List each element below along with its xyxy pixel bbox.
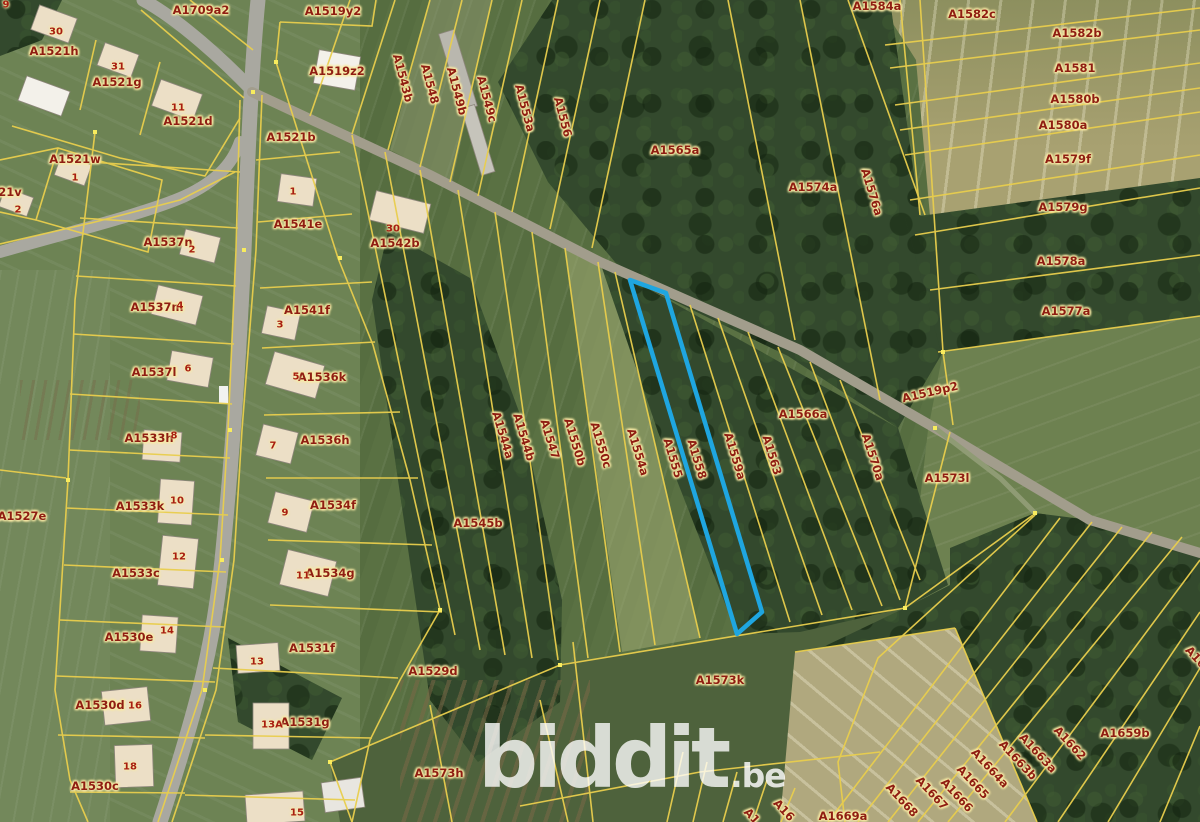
- house-number-label: 31: [111, 62, 125, 73]
- garden-plots-left: [20, 380, 140, 440]
- parcel-label: A1563: [759, 433, 784, 476]
- parcel-label: A1541f: [284, 303, 330, 317]
- parcel-label: A1565a: [651, 143, 700, 157]
- parcel-label: A1547: [537, 417, 562, 460]
- parcel-label: A1574a: [789, 180, 838, 194]
- field-track: [935, 428, 1035, 513]
- parcel-label: A1668: [883, 780, 921, 819]
- house-number-label: 11: [171, 103, 185, 114]
- left-field: [0, 270, 110, 822]
- aerial-background: [0, 0, 1200, 822]
- farm-strips-bottom-right: [0, 0, 1200, 822]
- house-number-label: 4: [177, 301, 184, 312]
- parcel-label: A1533k: [116, 499, 165, 513]
- parcel-label: A1521b: [266, 130, 315, 144]
- parcel-label: A1580b: [1050, 92, 1099, 106]
- parcel-label: A1584a: [853, 0, 902, 13]
- parcel-labels-layer: A1709a2A1521hA1521gA1521dA1521w21vA1519y…: [0, 0, 1200, 822]
- house-number-label: 2: [189, 245, 196, 256]
- parcel-label: A1566a: [779, 407, 828, 421]
- parcel-label: A1666: [938, 775, 976, 814]
- parcel-label: A1534f: [310, 498, 356, 512]
- parcel-label: A1534g: [305, 566, 354, 580]
- parcel-label: A1537l: [132, 365, 177, 379]
- parcel-label: A16: [1182, 643, 1200, 671]
- country-lane: [252, 92, 1200, 553]
- house-number-label: 7: [270, 441, 277, 452]
- parcel-label: A1554a: [624, 427, 652, 478]
- biddit-watermark: biddit.be: [478, 716, 786, 800]
- house-number-label: 14: [160, 626, 174, 637]
- parcel-label: A1531f: [289, 641, 335, 655]
- house-number-label: 3: [277, 320, 284, 331]
- parcel-label: A1542b: [370, 236, 419, 250]
- parcel-label: A1537m: [131, 300, 184, 314]
- parcel-label: A1548: [418, 62, 442, 105]
- parcel-label: A1573h: [414, 766, 463, 780]
- pasture-field: [0, 0, 1200, 822]
- parcel-label: A1549c: [474, 74, 500, 124]
- highlighted-parcel-outline[interactable]: [630, 280, 762, 634]
- house-number-label: 15: [290, 808, 304, 819]
- house-number-label: 9: [3, 0, 10, 11]
- parcel-label: A1577a: [1042, 304, 1091, 318]
- parcel-label: A1662: [1051, 723, 1089, 762]
- forest-patch-top-left: [0, 0, 1200, 822]
- parcel-label: A1530e: [105, 630, 154, 644]
- house-number-label: 1: [72, 173, 79, 184]
- parcel-label: A1550b: [561, 416, 589, 467]
- biddit-brand-text: biddit: [478, 709, 726, 807]
- parcel-label: A1531g: [280, 715, 329, 729]
- house-number-label: 5: [293, 372, 300, 383]
- parcel-label: A1521w: [49, 152, 101, 166]
- house-number-label: 30: [386, 224, 400, 235]
- house-number-label: 10: [170, 496, 184, 507]
- parcel-label: A1530d: [75, 698, 124, 712]
- light-grass-strip: [0, 0, 1200, 822]
- parcel-label: A1544a: [489, 410, 517, 461]
- parcel-label: A1582b: [1052, 26, 1101, 40]
- parcel-label: A1519z2: [309, 64, 365, 78]
- parcel-label: A1570a: [859, 432, 887, 483]
- house-number-label: 12: [172, 552, 186, 563]
- parcel-label: A1521d: [163, 114, 212, 128]
- cadastral-map-canvas[interactable]: A1709a2A1521hA1521gA1521dA1521w21vA1519y…: [0, 0, 1200, 822]
- parcel-label: A1555: [660, 436, 685, 479]
- parcel-label: A1536h: [300, 433, 349, 447]
- parcel-label: A1519y2: [305, 4, 361, 18]
- house-number-label: 6: [185, 364, 192, 375]
- house-number-label: 18: [123, 762, 137, 773]
- house-number-label: 13: [250, 657, 264, 668]
- parcel-label: A1533h: [124, 431, 173, 445]
- parcel-label: A1663b: [996, 737, 1040, 782]
- forest-center: [0, 0, 1200, 822]
- parcel-label: A1581: [1055, 61, 1096, 75]
- forest-patch-bottom-left: [0, 0, 1200, 822]
- parcel-label: A16: [770, 796, 797, 822]
- parcel-label: A1573l: [925, 471, 970, 485]
- parcel-label: A1527e: [0, 509, 46, 523]
- parcel-label: A1669a: [819, 809, 868, 822]
- parcel-label: A1519p2: [901, 379, 960, 405]
- parcel-label: A1545b: [453, 516, 502, 530]
- meadow-field: [0, 0, 1200, 822]
- forest-band-center-left: [0, 0, 1200, 822]
- boundary-lines: [0, 0, 1200, 822]
- forest-north-east: [0, 0, 1200, 822]
- parcel-label: A1663a: [1016, 730, 1059, 775]
- parcel-label: A1579g: [1038, 200, 1087, 214]
- parcel-label: A1521h: [29, 44, 78, 58]
- parcel-label: A1533c: [112, 566, 160, 580]
- parcel-label: A1667: [913, 773, 951, 812]
- parcel-label: A1580a: [1039, 118, 1088, 132]
- parcel-label: A1709a2: [173, 3, 230, 17]
- buildings: [0, 5, 495, 822]
- house-number-label: 8: [171, 431, 178, 442]
- parcel-label: A1556: [551, 95, 575, 138]
- house-number-label: 9: [282, 508, 289, 519]
- boundary-vertices: [66, 60, 1037, 764]
- parcel-label: A1664a: [968, 745, 1011, 790]
- biddit-tld-text: .be: [730, 756, 786, 795]
- house-number-label: 13A: [261, 720, 283, 731]
- house-number-label: 16: [128, 701, 142, 712]
- parcel-label: A1553a: [512, 83, 538, 134]
- parcel-label: A1579f: [1045, 152, 1091, 166]
- parcel-label: A1549b: [444, 65, 470, 116]
- parcel-label: A1578a: [1037, 254, 1086, 268]
- forest-top-center: [0, 0, 1200, 822]
- house-number-label: 1: [290, 187, 297, 198]
- parcel-label: A1573k: [696, 673, 745, 687]
- parcel-label: A1659b: [1100, 726, 1149, 740]
- parcel-label: A1558: [684, 437, 709, 480]
- light-grass-strip-top: [0, 0, 1200, 822]
- parcel-label: A1582c: [948, 7, 996, 21]
- parcel-label: A1537n: [143, 235, 192, 249]
- main-street: [160, 0, 258, 822]
- street-branch-north: [143, 0, 250, 88]
- street-branch-west: [0, 142, 240, 252]
- parcel-label: A1541e: [274, 217, 323, 231]
- parcel-label: A1530c: [71, 779, 119, 793]
- parcel-label: A1543b: [390, 52, 416, 103]
- parcel-label: A1521g: [92, 75, 141, 89]
- parcel-label: A1536k: [298, 370, 347, 384]
- parcel-label: A1529d: [408, 664, 457, 678]
- house-number-label: 30: [49, 27, 63, 38]
- residential-area: [0, 0, 360, 822]
- house-number-label: 11: [296, 571, 310, 582]
- parcel-label: A1576a: [858, 167, 886, 218]
- parcel-label: A1: [741, 805, 763, 822]
- parcel-label: A1559a: [721, 431, 749, 482]
- field-strips-area: [250, 0, 970, 790]
- parcel-label: A1665: [954, 762, 992, 801]
- parcel-label: 21v: [0, 185, 22, 199]
- farm-strips-top-right: [0, 0, 1200, 822]
- house-number-label: 2: [15, 205, 22, 216]
- parcel-label: A1544b: [510, 411, 538, 462]
- parcel-label: A1550c: [587, 420, 614, 470]
- roads-and-buildings: [0, 0, 1200, 822]
- parcel-boundaries: [0, 0, 1200, 822]
- forest-bottom-right: [0, 0, 1200, 822]
- road-network: [0, 0, 1200, 822]
